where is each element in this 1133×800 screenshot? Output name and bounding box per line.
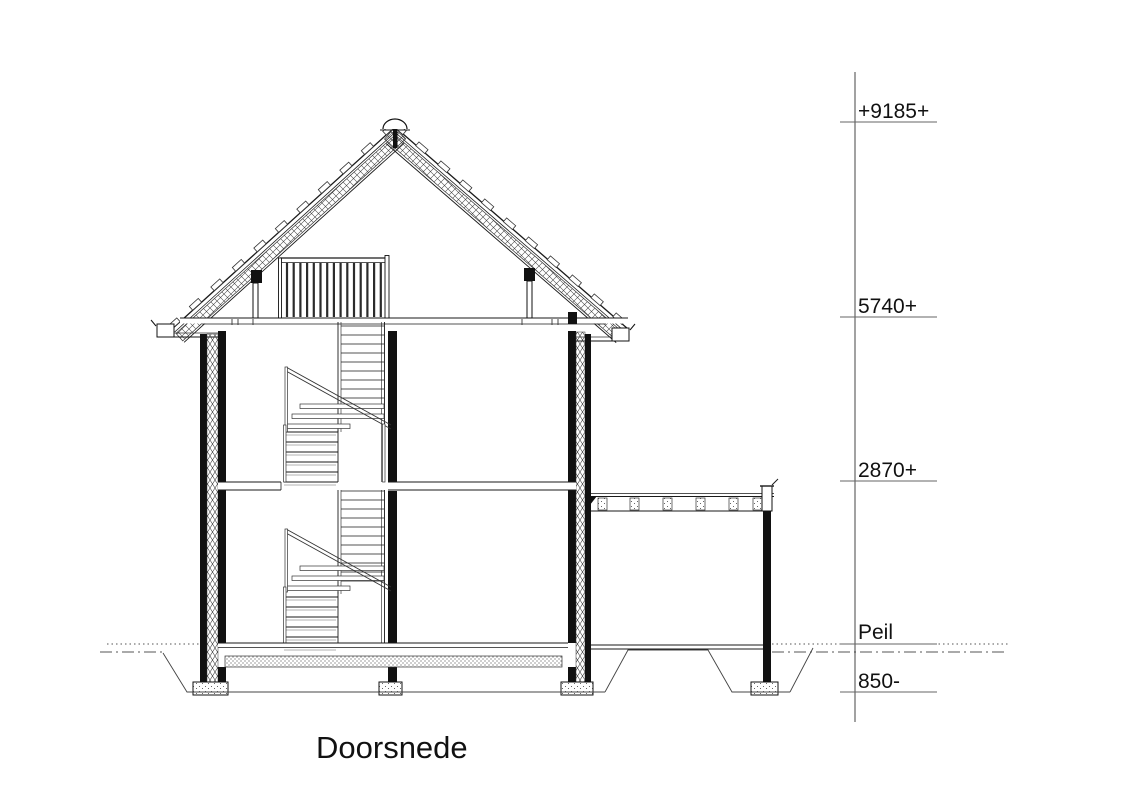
elevation-label-attic: 5740+ (858, 295, 917, 318)
purlin-right (524, 268, 535, 281)
staircase-upper (284, 322, 392, 485)
foundation (193, 682, 778, 695)
stair-lower-run-treads (284, 432, 338, 485)
section-title: Doorsnede (316, 730, 468, 765)
excavation-profile (163, 648, 813, 692)
staircase-lower (284, 490, 392, 650)
left-roof-slope (172, 127, 406, 342)
roof (168, 119, 628, 343)
extension-parapet (760, 479, 778, 511)
purlin-right-wall (568, 312, 577, 324)
balustrade (279, 256, 390, 319)
roof-post-right (527, 281, 532, 318)
stair-treads (341, 326, 384, 416)
elevation-label-first-floor: 2870+ (858, 459, 917, 482)
extension-wall (763, 511, 771, 682)
stair-lower-run-treads (284, 597, 338, 650)
newel-post-left (279, 258, 282, 318)
elevation-label-foundation: 850- (858, 670, 900, 693)
roof-post-left (253, 283, 258, 318)
foundation-pier (751, 682, 778, 695)
floor-insulation (225, 656, 562, 667)
foundation-pier (561, 682, 593, 695)
left-exterior-wall (200, 331, 226, 682)
right-roof-slope (385, 127, 629, 343)
elevation-scale: +9185+ 5740+ 2870+ Peil 850- (840, 72, 937, 722)
first-floor-slab (218, 482, 576, 490)
balusters (287, 263, 381, 317)
foundation-pier (193, 682, 228, 695)
ground-floor-slab (218, 643, 568, 667)
newel-post-right (385, 256, 389, 319)
section-canvas: +9185+ 5740+ 2870+ Peil 850- Doorsnede (0, 0, 1133, 800)
foundation-pier (379, 682, 402, 695)
elevation-label-ridge: +9185+ (858, 100, 929, 123)
extension-floor (591, 645, 763, 649)
extension-flat-roof (586, 479, 778, 511)
roof-tile-battens-right (394, 123, 625, 325)
interior-wall (388, 331, 397, 682)
architectural-section-drawing: +9185+ 5740+ 2870+ Peil 850- Doorsnede (0, 0, 1133, 800)
elevation-label-peil: Peil (858, 621, 893, 644)
purlin-left (251, 270, 262, 283)
